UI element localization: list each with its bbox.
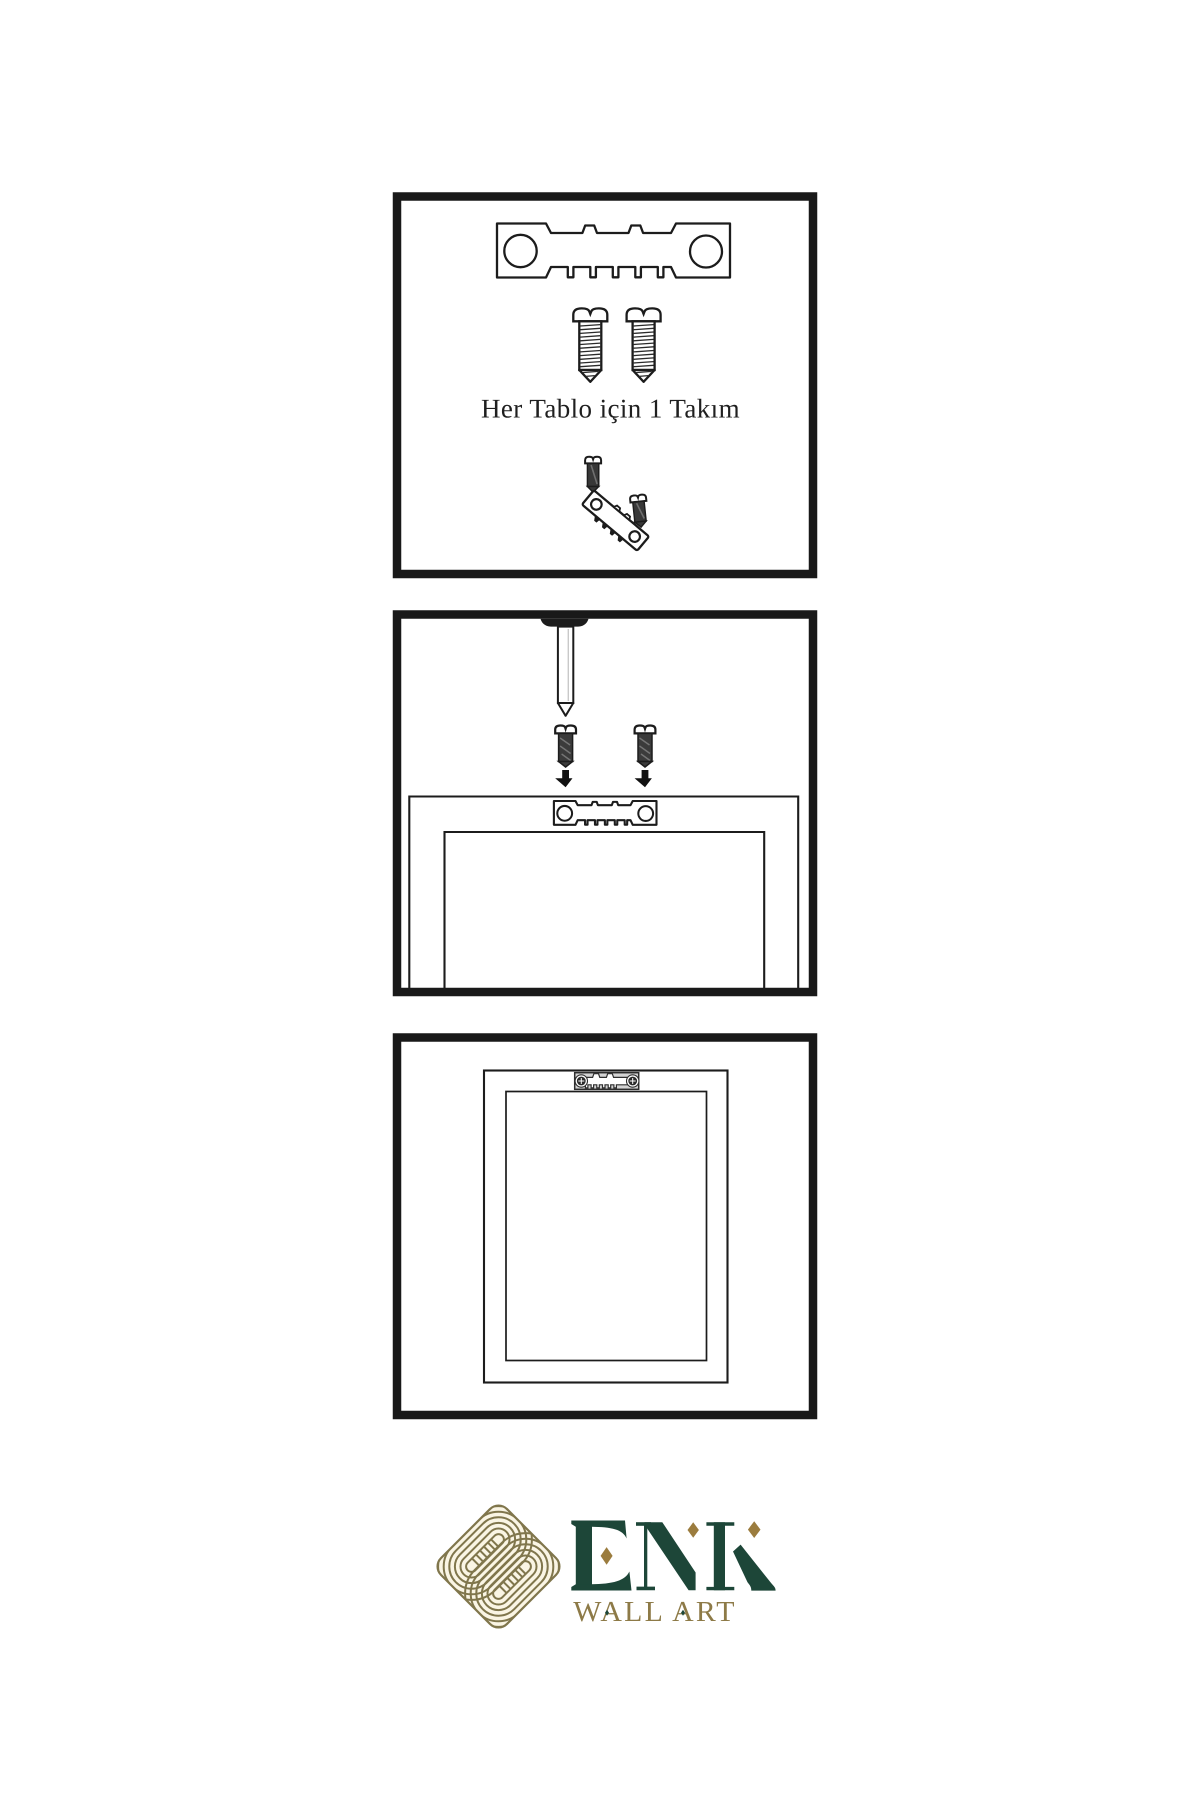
svg-text:Her Tablo için 1 Takım: Her Tablo için 1 Takım	[481, 394, 740, 424]
svg-text:WALL ART: WALL ART	[573, 1596, 737, 1628]
